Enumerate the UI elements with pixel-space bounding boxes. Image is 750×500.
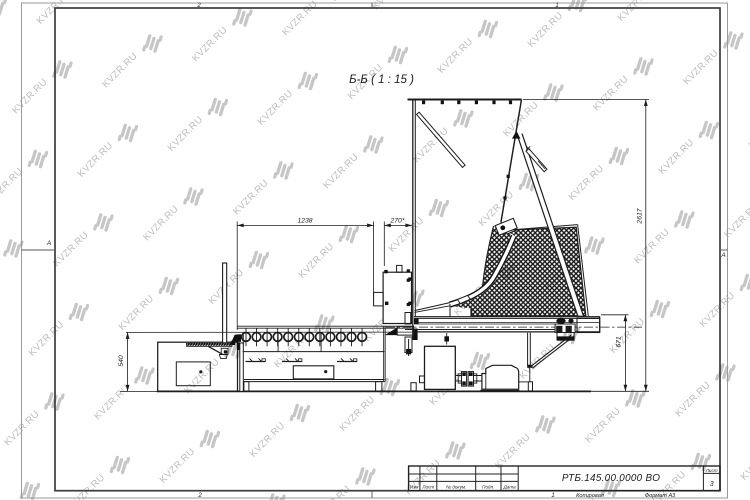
- svg-text:540: 540: [118, 355, 125, 367]
- svg-text:671: 671: [616, 336, 623, 348]
- svg-text:270*: 270*: [390, 218, 405, 225]
- svg-text:2: 2: [196, 3, 201, 9]
- svg-text:1: 1: [555, 3, 558, 9]
- svg-text:3: 3: [710, 481, 714, 488]
- svg-text:Лист: Лист: [421, 485, 434, 490]
- svg-text:1238: 1238: [297, 218, 312, 225]
- svg-text:Лист: Лист: [705, 468, 718, 473]
- svg-text:Подп.: Подп.: [482, 485, 494, 490]
- svg-text:Дата: Дата: [503, 485, 517, 490]
- svg-text:A: A: [46, 240, 51, 247]
- svg-text:1: 1: [551, 493, 554, 499]
- svg-text:№ докум.: № докум.: [446, 485, 466, 490]
- svg-text:Изм: Изм: [410, 485, 419, 490]
- svg-text:РТБ.145.00.0000 ВО: РТБ.145.00.0000 ВО: [562, 473, 660, 484]
- svg-text:Формат А3: Формат А3: [645, 493, 676, 499]
- svg-text:2617: 2617: [636, 208, 643, 224]
- svg-text:A: A: [720, 252, 725, 259]
- svg-text:Б-Б ( 1 : 15 ): Б-Б ( 1 : 15 ): [349, 74, 414, 86]
- svg-text:2: 2: [197, 493, 202, 499]
- svg-text:Копировал: Копировал: [576, 493, 605, 499]
